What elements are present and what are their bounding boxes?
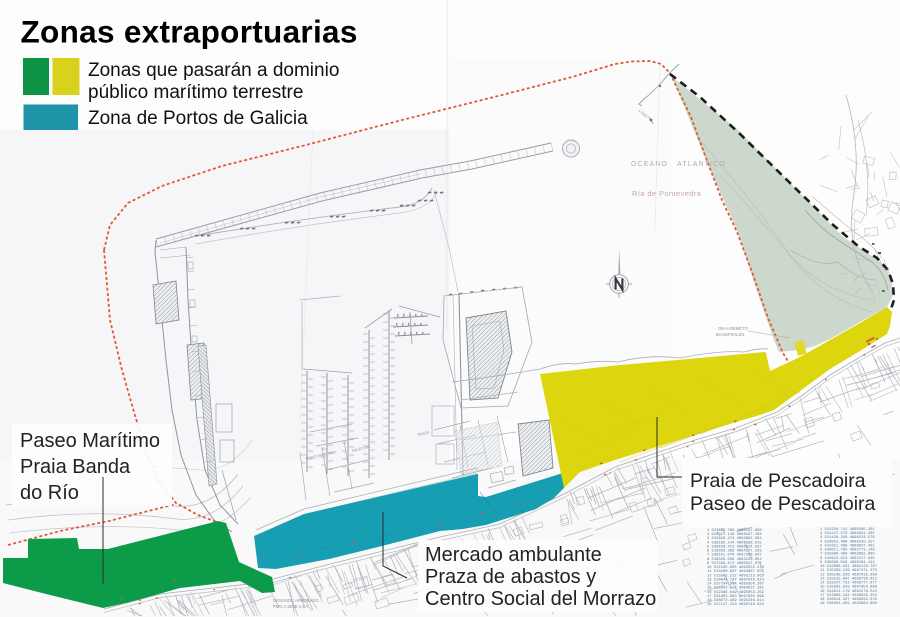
svg-text:DESLINDE APROBADO: DESLINDE APROBADO — [273, 598, 319, 603]
svg-text:Zonas extraportuarias: Zonas extraportuarias — [21, 14, 358, 50]
svg-text:Zona de Portos de Galicia: Zona de Portos de Galicia — [88, 108, 308, 129]
svg-text:Mercado ambulante: Mercado ambulante — [425, 544, 602, 566]
svg-text:BAAMPSALEN: BAAMPSALEN — [716, 332, 744, 337]
svg-text:Ría de Pontevedra: Ría de Pontevedra — [632, 189, 702, 198]
svg-text:Paseo de Pescadoira: Paseo de Pescadoira — [690, 493, 876, 515]
svg-text:Centro Social del Morrazo: Centro Social del Morrazo — [425, 588, 656, 610]
svg-text:Praia Banda: Praia Banda — [20, 456, 131, 478]
svg-text:Praia de Pescadoira: Praia de Pescadoira — [690, 470, 866, 492]
svg-text:19 528304.459 4693984.990: 19 528304.459 4693984.990 — [820, 602, 878, 606]
svg-text:19 527147.313 4690749.563: 19 527147.313 4690749.563 — [707, 603, 765, 607]
svg-text:Praza de abastos y: Praza de abastos y — [425, 566, 596, 588]
svg-text:PMO A 2E2E-1-BA: PMO A 2E2E-1-BA — [273, 604, 308, 609]
svg-text:público marítimo terrestre: público marítimo terrestre — [88, 82, 303, 103]
svg-text:OCEANO ATLANTICO: OCEANO ATLANTICO — [631, 161, 726, 168]
svg-text:Zonas que pasarán a dominio: Zonas que pasarán a dominio — [88, 60, 339, 81]
svg-text:Paseo Marítimo: Paseo Marítimo — [20, 430, 160, 452]
svg-text:do Río: do Río — [20, 482, 79, 504]
svg-text:OB-H-DEMETO: OB-H-DEMETO — [718, 326, 748, 331]
